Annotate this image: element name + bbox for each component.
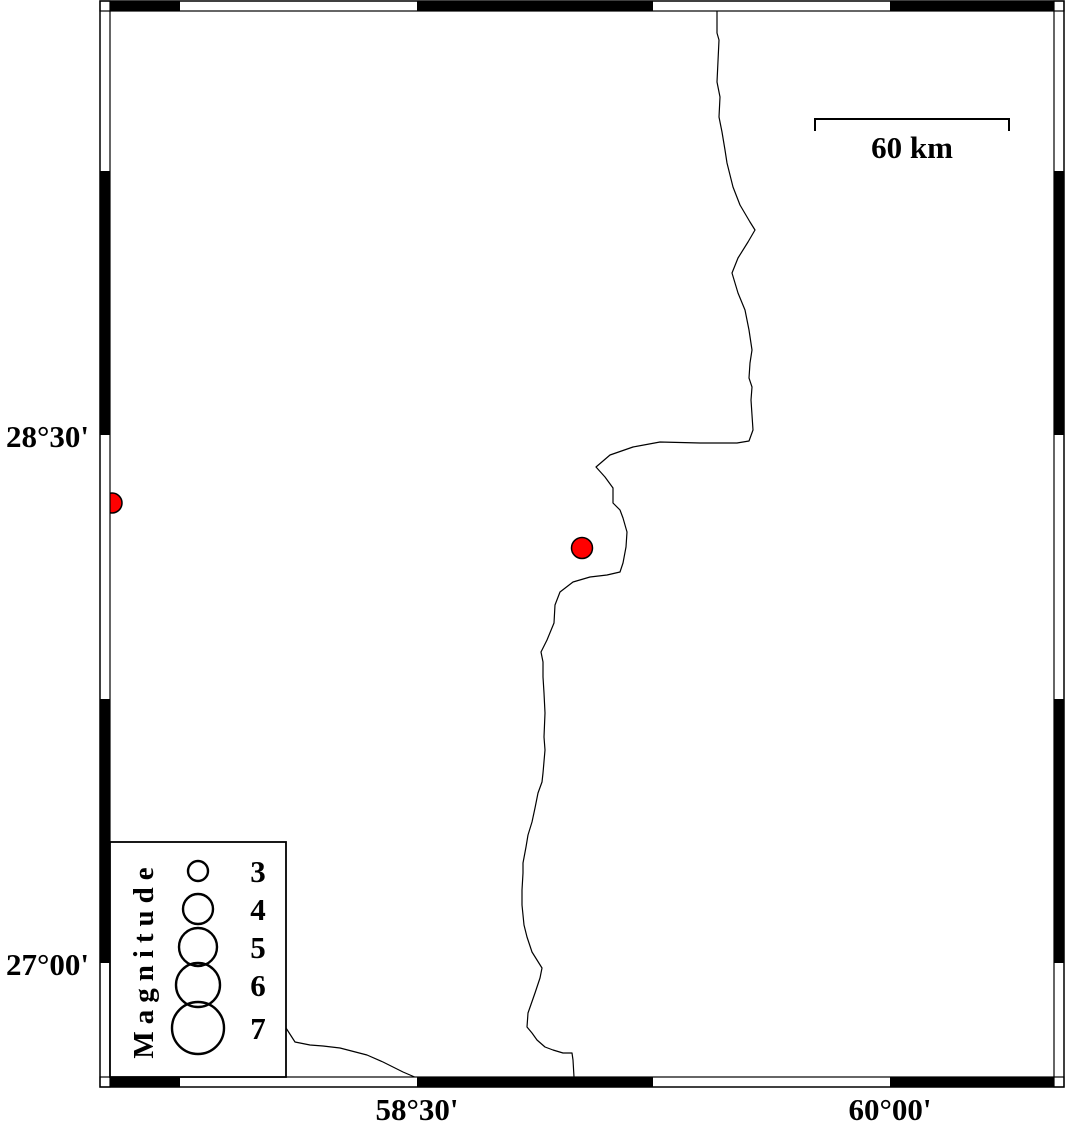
frame-segment-left [100,171,110,435]
frame-segment-top [110,1,180,11]
frame-segment-top [890,1,1054,11]
lat-label-28-30: 28°30' [6,419,89,454]
frame-corner [100,1,110,11]
lon-label-58-30: 58°30' [375,1092,458,1126]
seismicity-map-figure: 28°30' 27°00' 58°30' 60°00' 60 km Magnit… [0,0,1066,1126]
scale-bar-label: 60 km [871,130,953,165]
legend-entry-label: 6 [250,968,266,1003]
legend-entry-label: 3 [250,854,266,889]
coastline-path [286,1028,417,1078]
frame-segment-right [1054,699,1064,963]
coastline-path [522,11,755,1077]
frame-corner [100,1077,110,1087]
frame-segment-bottom [417,1077,653,1087]
coastline-layer [286,11,755,1078]
earthquake-layer [102,493,593,559]
frame-segment-right [1054,171,1064,435]
legend-entry-label: 5 [250,930,266,965]
frame-segment-top [417,1,653,11]
magnitude-legend: Magnitude 34567 [110,842,286,1077]
frame-segment-bottom [110,1077,180,1087]
scale-bar-group: 60 km [815,119,1009,165]
legend-entry-label: 7 [250,1011,266,1046]
frame-segment-bottom [890,1077,1054,1087]
lon-label-60-00: 60°00' [848,1092,931,1126]
frame-segment-left [100,699,110,963]
frame-corner [1054,1077,1064,1087]
frame-corner [1054,1,1064,11]
legend-title: Magnitude [128,860,160,1058]
map-canvas: 28°30' 27°00' 58°30' 60°00' 60 km Magnit… [0,0,1066,1126]
lat-label-27-00: 27°00' [6,947,89,982]
legend-entry-label: 4 [250,892,266,927]
earthquake-symbol [572,538,593,559]
